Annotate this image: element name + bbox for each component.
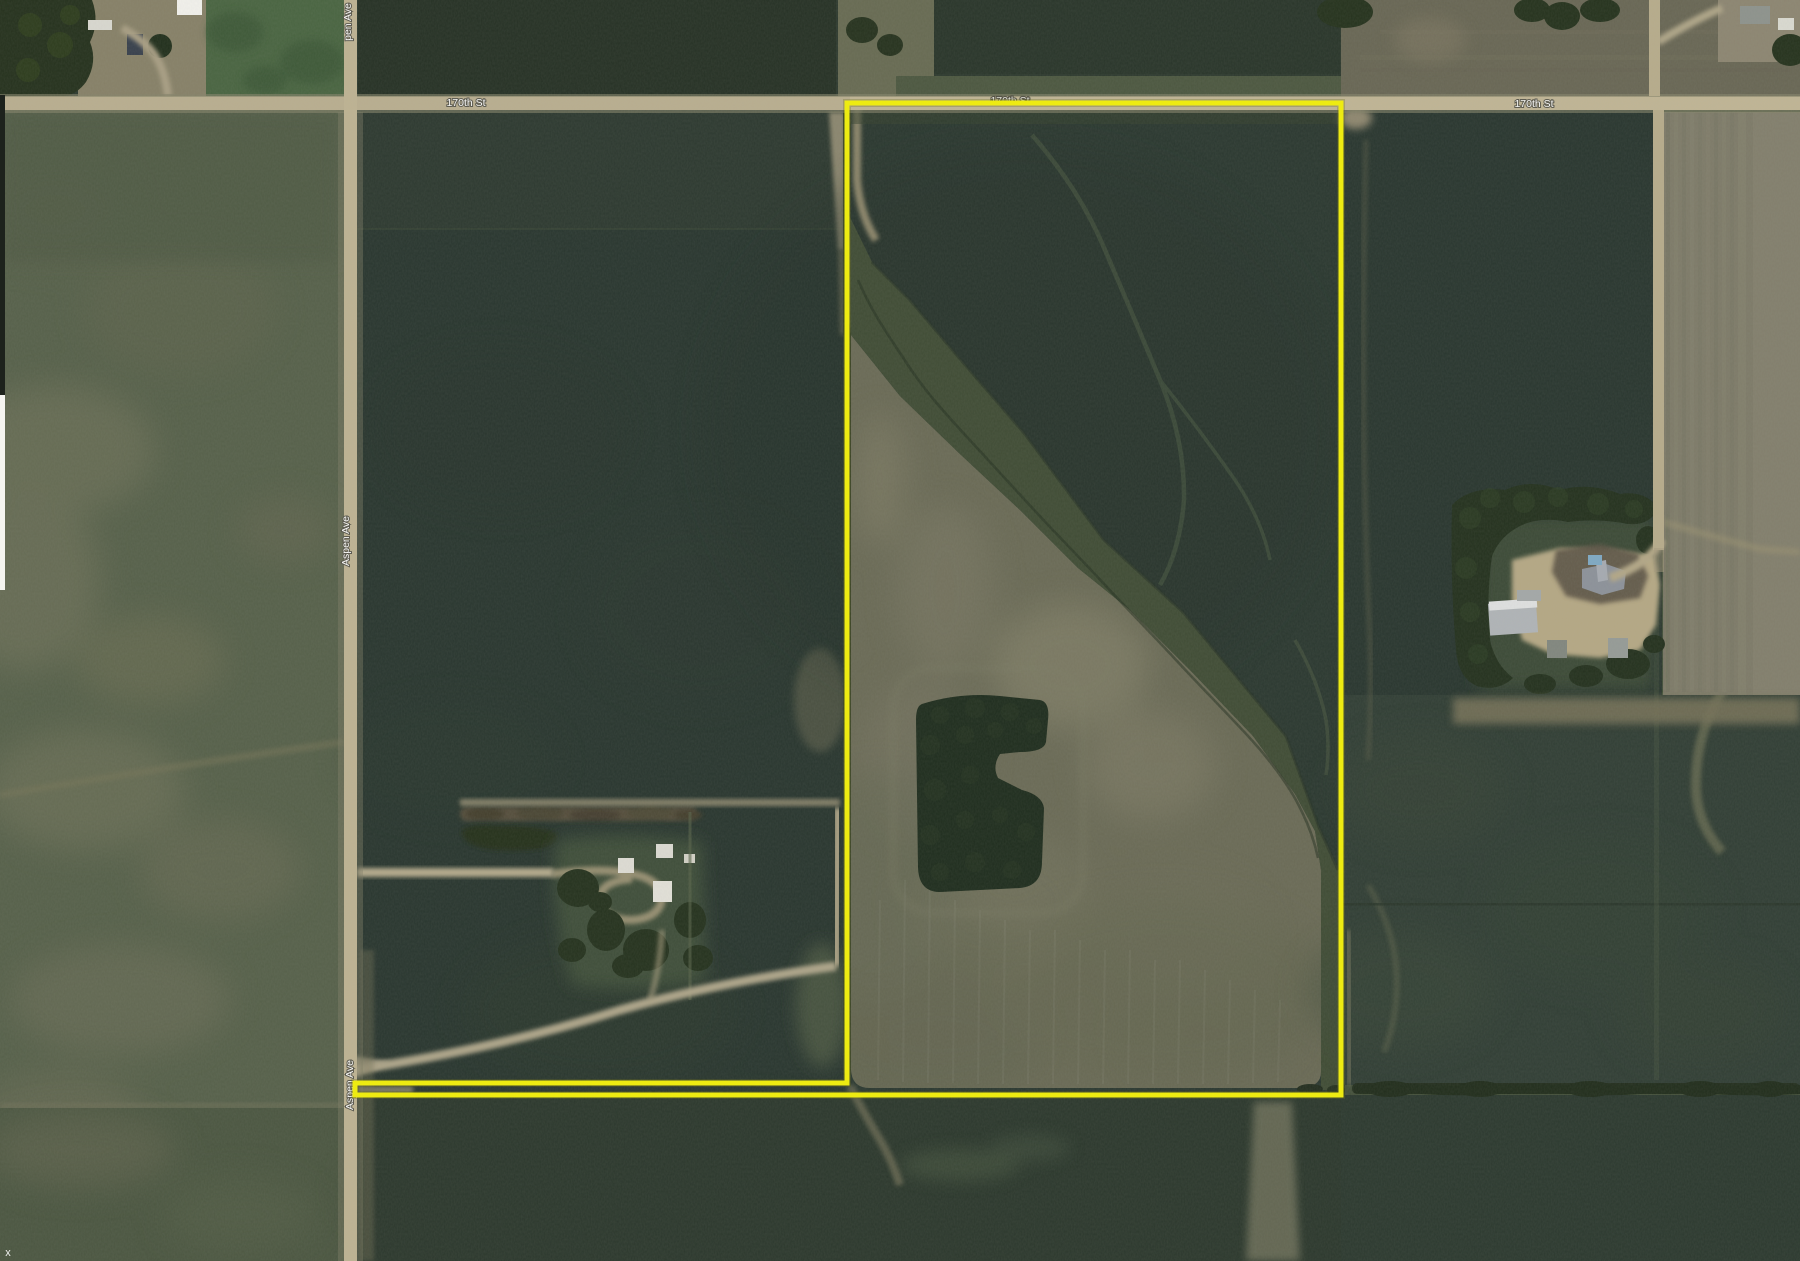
svg-text:x: x	[5, 1247, 11, 1259]
